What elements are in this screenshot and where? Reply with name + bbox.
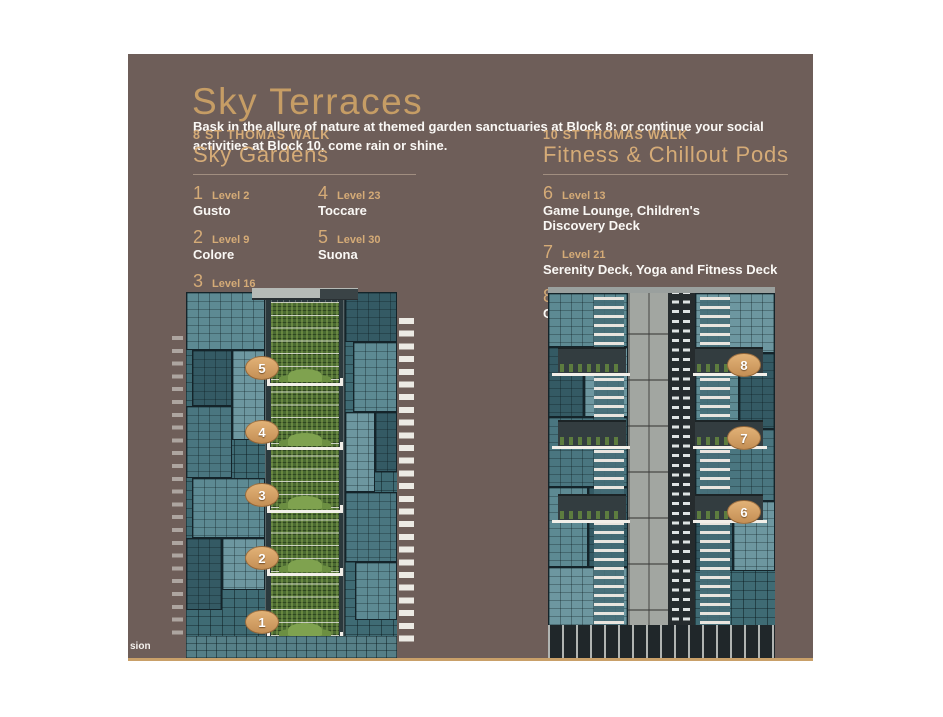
legend-item-number: 1 <box>193 184 203 202</box>
pod-deck <box>552 520 630 523</box>
pod-balcony <box>558 420 626 446</box>
glass-panel <box>355 562 397 620</box>
pod-marker: 6 <box>727 500 761 524</box>
heading-rule <box>193 174 416 175</box>
legend-item-number: 2 <box>193 228 203 246</box>
legend-item-level: Level 9 <box>212 234 249 246</box>
pod-deck <box>552 446 630 449</box>
brochure-panel: Sky Terraces Bask in the allure of natur… <box>128 54 813 661</box>
page-canvas: Sky Terraces Bask in the allure of natur… <box>0 0 943 717</box>
terrace-tree <box>288 369 322 382</box>
legend-item: 4 Level 23 Toccare <box>318 184 498 218</box>
legend-item-name: Gusto <box>193 203 318 218</box>
building-left-illustration: 5 4 3 2 1 <box>172 288 414 658</box>
page-title: Sky Terraces <box>192 81 423 123</box>
glass-panel <box>345 412 375 492</box>
legend-item-level: Level 23 <box>337 190 380 202</box>
terrace-marker: 1 <box>245 610 279 634</box>
podium <box>548 625 775 658</box>
legend-item-name: Game Lounge, Children's Discovery Deck <box>543 203 808 233</box>
glass-panel <box>353 342 397 412</box>
legend-item-head: 6 Level 13 <box>543 184 808 202</box>
terrace-tree <box>288 623 322 636</box>
legend-item-level: Level 21 <box>562 249 605 261</box>
legend-item-number: 4 <box>318 184 328 202</box>
pod-deck <box>552 373 630 376</box>
terrace-marker: 5 <box>245 356 279 380</box>
pod-marker: 8 <box>727 353 761 377</box>
block-label-10: 10 ST THOMAS WALK <box>543 128 808 142</box>
legend-item-head: 2 Level 9 <box>193 228 318 246</box>
panel-bottom-rule <box>128 658 813 661</box>
glass-panel <box>375 412 397 472</box>
legend-item-level: Level 13 <box>562 190 605 202</box>
legend-item: 6 Level 13 Game Lounge, Children's Disco… <box>543 184 808 233</box>
legend-item-name: Suona <box>318 247 498 262</box>
legend-item-name: Colore <box>193 247 318 262</box>
terrace-platform <box>267 510 343 513</box>
artist-impression-caption: sion <box>130 641 151 652</box>
legend-item-number: 5 <box>318 228 328 246</box>
pod-marker: 7 <box>727 426 761 450</box>
window-strip <box>668 287 695 658</box>
heading-rule <box>543 174 788 175</box>
floor-tick-marks <box>172 336 183 636</box>
glass-panel <box>186 406 232 478</box>
legend-item-level: Level 2 <box>212 190 249 202</box>
planter-greens <box>560 437 622 445</box>
terrace-tree <box>288 559 322 572</box>
block-label-8: 8 ST THOMAS WALK <box>193 128 523 142</box>
pod-balcony <box>558 494 626 520</box>
planter-greens <box>560 511 622 519</box>
legend-item-number: 6 <box>543 184 553 202</box>
terrace-marker: 3 <box>245 483 279 507</box>
pod-balcony <box>558 347 626 373</box>
legend-item: 5 Level 30 Suona <box>318 228 498 262</box>
roof-band <box>548 287 775 293</box>
legend-item: 7 Level 21 Serenity Deck, Yoga and Fitne… <box>543 243 808 277</box>
roof-cap <box>320 289 358 299</box>
legend-item-level: Level 30 <box>337 234 380 246</box>
window-lights <box>672 291 679 651</box>
concrete-core <box>628 287 668 658</box>
legend-item-number: 7 <box>543 243 553 261</box>
terrace-marker: 2 <box>245 546 279 570</box>
terrace-platform <box>267 447 343 450</box>
glass-facade <box>345 292 397 652</box>
legend-item-head: 7 Level 21 <box>543 243 808 261</box>
legend-item-name: Serenity Deck, Yoga and Fitness Deck <box>543 262 808 277</box>
planter-greens <box>560 364 622 372</box>
terrace-marker: 4 <box>245 420 279 444</box>
glass-panel <box>186 538 222 610</box>
terrace-tree <box>288 496 322 509</box>
legend-item-head: 5 Level 30 <box>318 228 498 246</box>
vertical-green-wall <box>271 302 339 642</box>
legend-item: 1 Level 2 Gusto <box>193 184 318 218</box>
building-right-illustration: 8 7 6 <box>548 287 775 658</box>
louver-ladder <box>399 318 414 648</box>
glass-facade <box>186 292 265 652</box>
podium <box>186 636 397 658</box>
terrace-tree <box>288 433 322 446</box>
legend-item-head: 4 Level 23 <box>318 184 498 202</box>
legend-item: 2 Level 9 Colore <box>193 228 318 262</box>
window-lights <box>683 291 690 651</box>
legend-item-head: 1 Level 2 <box>193 184 318 202</box>
glass-panel <box>186 292 265 350</box>
terrace-platform <box>267 573 343 576</box>
section-heading-sky-gardens: Sky Gardens <box>193 142 523 168</box>
glass-panel <box>192 350 232 406</box>
glass-panel <box>345 492 397 562</box>
terrace-platform <box>267 383 343 386</box>
section-heading-fitness-pods: Fitness & Chillout Pods <box>543 142 808 168</box>
legend-item-name: Toccare <box>318 203 498 218</box>
